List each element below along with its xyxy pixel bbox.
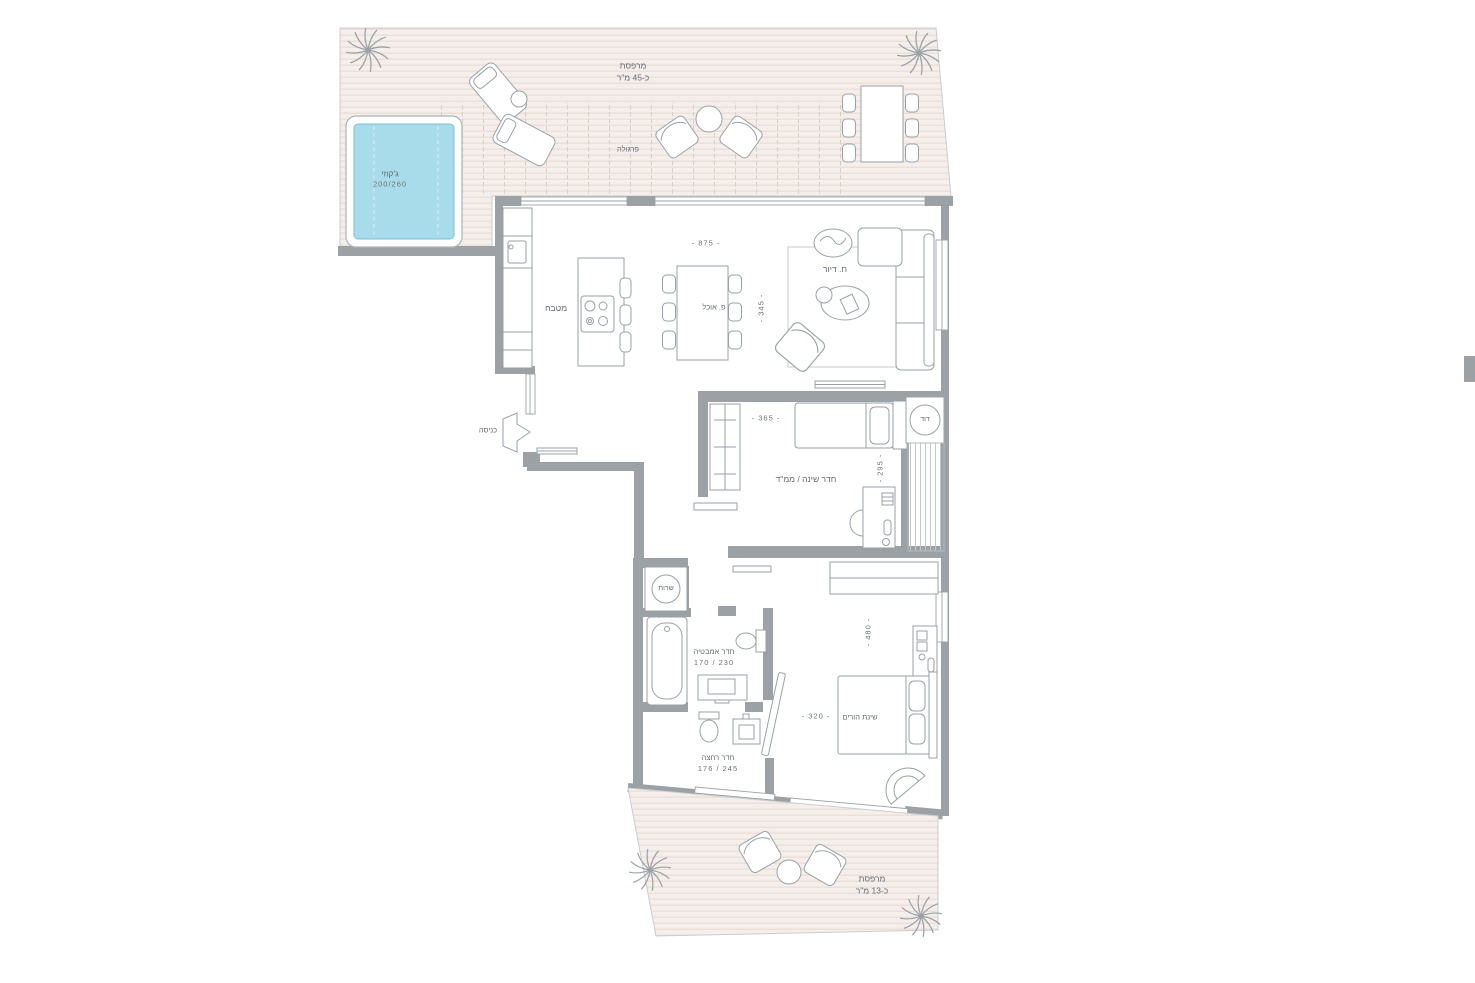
closet [710, 404, 740, 490]
coffee-table [816, 286, 869, 320]
terrace-top-label-name: מרפסת [617, 60, 650, 72]
jacuzzi-label-name: ג'קוזי [373, 167, 407, 179]
dining-label-text: פ. אוכל [702, 303, 725, 314]
edge-artifact [1464, 356, 1475, 382]
shower-room-label: חדר רחצה 176 / 245 [698, 753, 738, 775]
kitchen-counter [503, 208, 532, 368]
floor-plan-drawing [0, 0, 1475, 983]
cooktop [581, 296, 614, 332]
pergola-label-text: פרגולה [617, 145, 639, 156]
terrace-bottom-label: מרפסת כ-13 מ"ר [856, 873, 889, 898]
dim-bedroom-depth-text: - 295 - [876, 454, 887, 483]
terrace-top-label-size: כ-45 מ"ר [617, 72, 650, 84]
jacuzzi-label-size: 200/260 [373, 180, 407, 191]
terrace-bottom-label-size: כ-13 מ"ר [856, 885, 889, 897]
bar-stool [620, 305, 631, 325]
bathroom-label: חדר אמבטיה 170 / 230 [694, 647, 735, 669]
dim-living-depth-text: - 345 - [757, 294, 768, 323]
entrance-label: כניסה [479, 426, 497, 437]
shower-room-label-size: 176 / 245 [698, 764, 738, 775]
service-label-text: שרות [658, 584, 674, 594]
door-leaf [733, 566, 771, 572]
desk-chair [850, 510, 863, 536]
dim-dining-width: - 875 - [692, 239, 721, 250]
terrace-top-label: מרפסת כ-45 מ"ר [617, 60, 650, 85]
outdoor-dining-set [843, 86, 919, 162]
shaft [908, 443, 944, 551]
terrace-table [696, 106, 722, 132]
toilet [699, 712, 719, 742]
kitchen-label: מטבח [545, 302, 567, 314]
dim-living-depth: - 345 - [757, 294, 768, 323]
entry-arrow-icon [503, 413, 530, 452]
dim-master-width-text: - 320 - [802, 712, 831, 723]
bar-stool [620, 278, 631, 298]
pergola-label: פרגולה [617, 145, 639, 156]
living-label: ח. דיור [823, 263, 847, 275]
bedroom-label: חדר שינה / ממ"ד [776, 473, 837, 485]
dim-bedroom-width: - 365 - [752, 414, 781, 425]
entrance-label-text: כניסה [479, 426, 497, 437]
master-bedroom-label: שינת הורים [842, 713, 877, 724]
toilet [736, 630, 766, 652]
bathtub [647, 617, 687, 705]
sink [733, 714, 760, 744]
bedroom-label-text: חדר שינה / ממ"ד [776, 473, 837, 485]
master-bedroom-area [830, 562, 938, 804]
sofa [858, 228, 934, 370]
shower-room-label-name: חדר רחצה [698, 753, 738, 764]
entrance-area [503, 413, 577, 454]
terrace-table [777, 860, 801, 884]
service-label: שרות [658, 584, 674, 594]
terrace-bottom-label-name: מרפסת [856, 873, 889, 885]
boiler-label: דוד [920, 415, 930, 425]
bathroom-label-name: חדר אמבטיה [694, 647, 735, 658]
living-armchair [773, 320, 827, 373]
door-leaf [694, 503, 737, 510]
boiler-label-text: דוד [920, 415, 930, 425]
kitchen-area [503, 208, 631, 368]
living-area [773, 228, 934, 388]
master-bedroom-label-text: שינת הורים [842, 713, 877, 724]
dresser [913, 626, 937, 676]
dining-label: פ. אוכל [702, 303, 725, 314]
dim-bedroom-depth: - 295 - [876, 454, 887, 483]
fan-chair [877, 759, 925, 804]
wardrobe [830, 562, 938, 594]
dim-master-width: - 320 - [802, 712, 831, 723]
side-table [511, 91, 527, 107]
jacuzzi-label: ג'קוזי 200/260 [373, 167, 407, 190]
living-label-text: ח. דיור [823, 263, 847, 275]
dim-dining-width-text: - 875 - [692, 239, 721, 250]
kitchen-sink [508, 241, 526, 263]
throw-pillow [814, 229, 852, 257]
desk [850, 487, 895, 548]
dim-bedroom-width-text: - 365 - [752, 414, 781, 425]
bar-stool [620, 332, 631, 352]
pergola-area [432, 102, 852, 196]
kitchen-label-text: מטבח [545, 302, 567, 314]
bathroom-label-size: 170 / 230 [694, 658, 735, 669]
dim-master-depth: - 480 - [864, 618, 875, 647]
floor-plan: מרפסת כ-45 מ"ר פרגולה ג'קוזי 200/260 מטב… [0, 0, 1475, 983]
dim-master-depth-text: - 480 - [864, 618, 875, 647]
vanity-sink [698, 675, 747, 703]
single-bed [795, 401, 907, 449]
